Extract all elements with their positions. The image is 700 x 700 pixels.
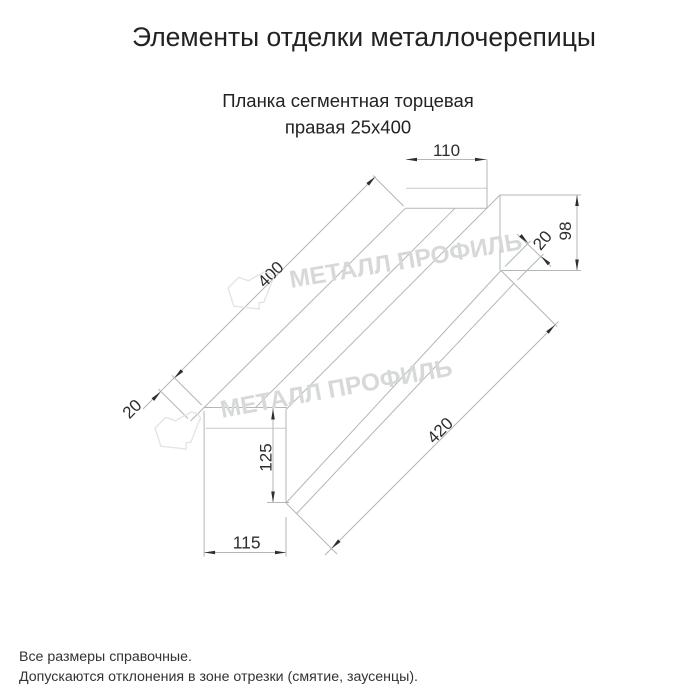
svg-text:МЕТАЛЛ ПРОФИЛЬ: МЕТАЛЛ ПРОФИЛЬ: [218, 354, 454, 423]
svg-text:Планка сегментная торцевая: Планка сегментная торцевая: [222, 90, 474, 111]
svg-text:правая 25x400: правая 25x400: [285, 117, 411, 138]
svg-text:Элементы отделки металлочерепи: Элементы отделки металлочерепицы: [132, 22, 596, 52]
svg-text:Допускаются отклонения в зоне: Допускаются отклонения в зоне отрезки (с…: [19, 669, 418, 685]
svg-text:Все размеры справочные.: Все размеры справочные.: [19, 649, 192, 665]
svg-text:115: 115: [233, 533, 261, 553]
svg-text:20: 20: [119, 396, 146, 423]
svg-text:420: 420: [423, 414, 456, 447]
svg-text:110: 110: [433, 141, 460, 160]
svg-text:98: 98: [556, 222, 575, 241]
svg-text:125: 125: [257, 443, 276, 471]
